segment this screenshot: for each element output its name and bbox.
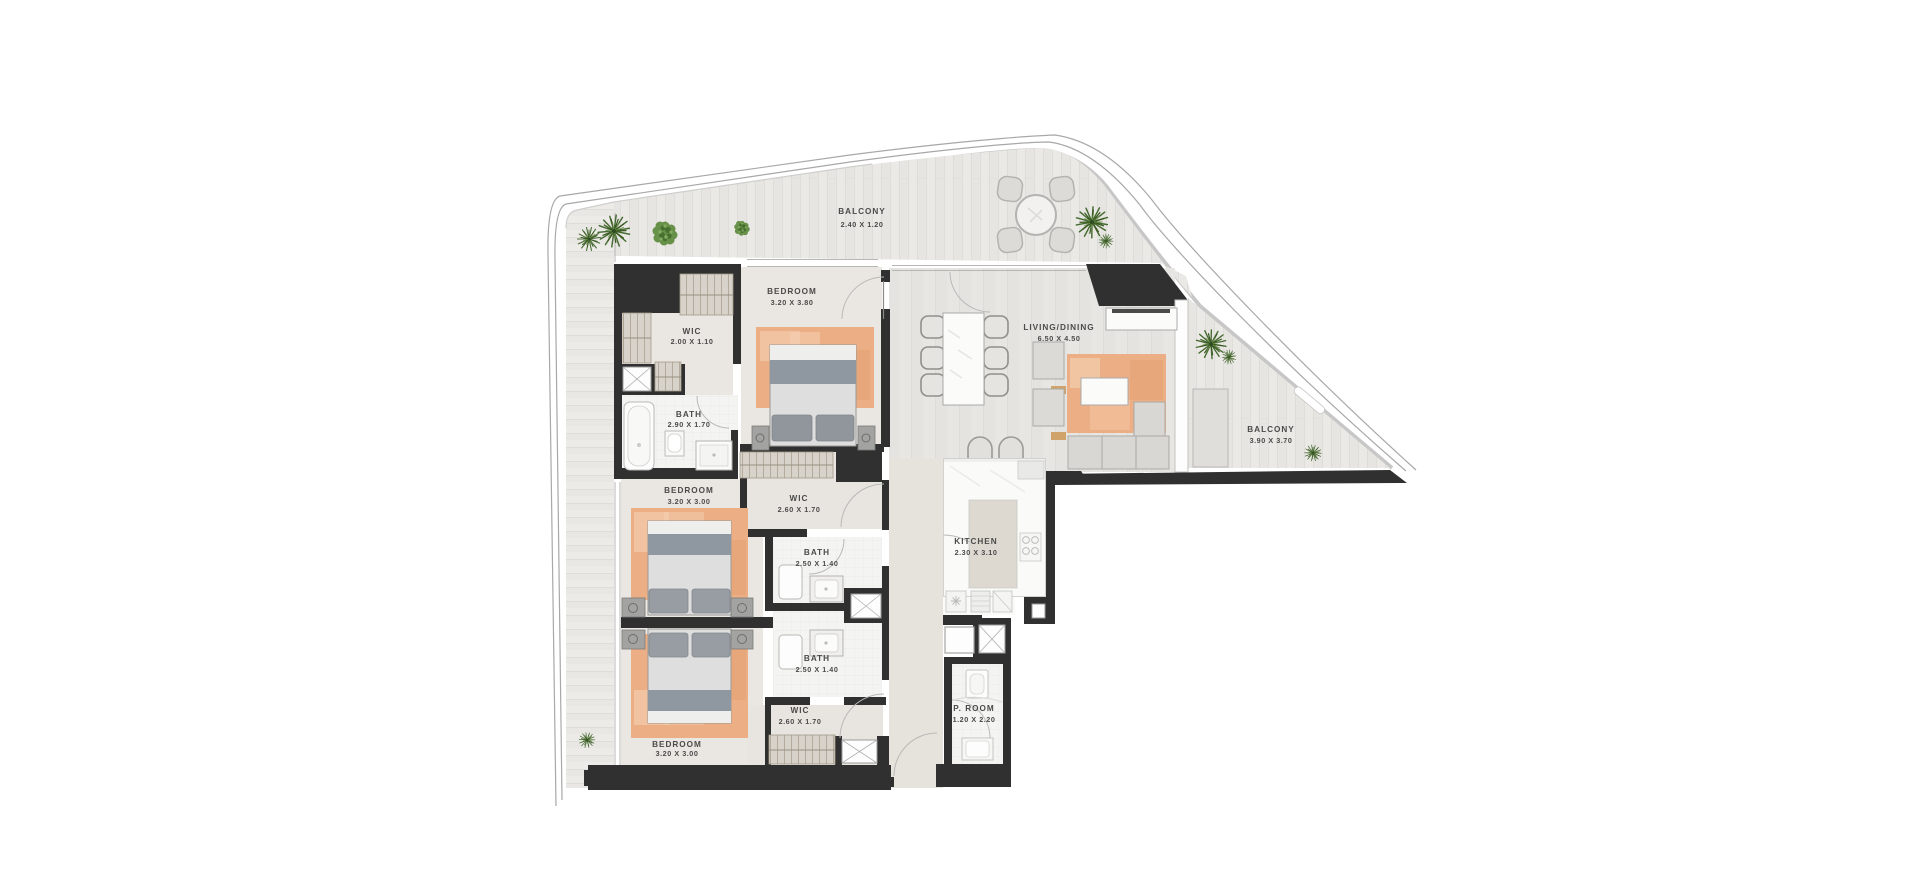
svg-text:2.00 X 1.10: 2.00 X 1.10 xyxy=(671,337,714,346)
svg-text:2.60 X 1.70: 2.60 X 1.70 xyxy=(778,505,821,514)
svg-text:6.50 X 4.50: 6.50 X 4.50 xyxy=(1038,334,1081,343)
svg-text:KITCHEN: KITCHEN xyxy=(954,537,997,546)
svg-text:BATH: BATH xyxy=(676,410,702,419)
svg-text:3.90 X 3.70: 3.90 X 3.70 xyxy=(1250,436,1293,445)
svg-text:2.30 X 3.10: 2.30 X 3.10 xyxy=(955,548,998,557)
svg-text:WIC: WIC xyxy=(790,494,809,503)
svg-text:1.20 X 2.20: 1.20 X 2.20 xyxy=(953,715,996,724)
svg-text:BEDROOM: BEDROOM xyxy=(652,740,702,749)
svg-text:BEDROOM: BEDROOM xyxy=(767,287,817,296)
svg-text:2.40 X 1.20: 2.40 X 1.20 xyxy=(841,220,884,229)
svg-text:BATH: BATH xyxy=(804,548,830,557)
svg-text:P. ROOM: P. ROOM xyxy=(953,704,994,713)
svg-text:BEDROOM: BEDROOM xyxy=(664,486,714,495)
svg-text:LIVING/DINING: LIVING/DINING xyxy=(1023,323,1094,332)
svg-text:BATH: BATH xyxy=(804,654,830,663)
svg-text:WIC: WIC xyxy=(791,706,810,715)
svg-text:2.50 X 1.40: 2.50 X 1.40 xyxy=(796,665,839,674)
svg-text:3.20 X 3.80: 3.20 X 3.80 xyxy=(771,298,814,307)
svg-text:3.20 X 3.00: 3.20 X 3.00 xyxy=(668,497,711,506)
svg-text:2.60 X 1.70: 2.60 X 1.70 xyxy=(779,717,822,726)
svg-text:WIC: WIC xyxy=(683,327,702,336)
svg-text:2.50 X 1.40: 2.50 X 1.40 xyxy=(796,559,839,568)
svg-text:BALCONY: BALCONY xyxy=(838,207,885,216)
svg-text:3.20 X 3.00: 3.20 X 3.00 xyxy=(656,749,699,758)
svg-text:2.90 X 1.70: 2.90 X 1.70 xyxy=(668,420,711,429)
svg-text:BALCONY: BALCONY xyxy=(1247,425,1294,434)
